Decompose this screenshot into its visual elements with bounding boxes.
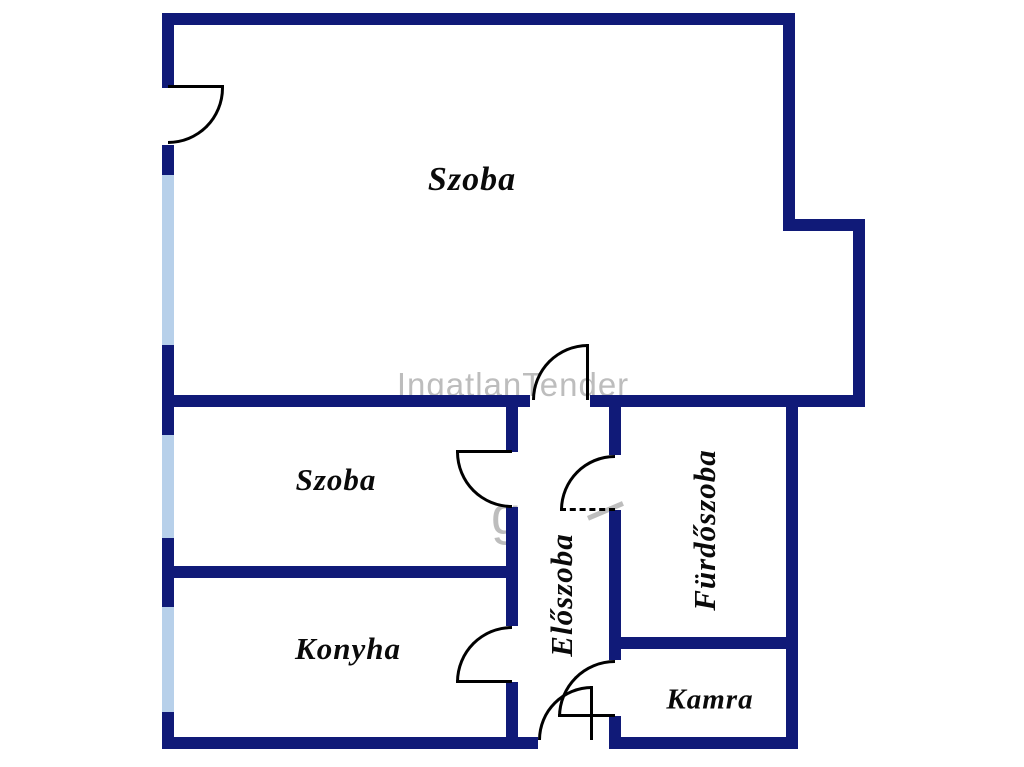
wall-left-segment-3 xyxy=(162,345,174,435)
wall-hall-left-segment-2 xyxy=(506,507,518,626)
wall-alcove-right xyxy=(853,219,865,407)
room-label-konyha: Konyha xyxy=(295,631,401,667)
room-label-kamra: Kamra xyxy=(666,684,753,717)
szoba-main-door-arc xyxy=(532,344,588,400)
window-szoba-main xyxy=(162,175,174,345)
wall-top xyxy=(162,13,795,25)
wall-left-segment-1 xyxy=(162,13,174,88)
wall-szoba-konyha xyxy=(162,566,518,578)
entry-door-arc xyxy=(538,686,592,740)
room-label-eloszoba: Előszoba xyxy=(544,533,580,656)
room-label-szoba-main: Szoba xyxy=(428,161,516,199)
konyha-door-arc xyxy=(456,626,512,682)
room-label-furdoszoba: Fürdőszoba xyxy=(687,449,723,611)
wall-right-lower xyxy=(786,395,798,749)
window-konyha xyxy=(162,607,174,712)
wall-divider-main-right xyxy=(590,395,865,407)
wall-left-segment-2 xyxy=(162,145,174,175)
wall-hall-left-segment-1 xyxy=(506,395,518,452)
wall-hall-right-segment-1 xyxy=(609,395,621,455)
wall-bottom-left xyxy=(162,737,538,749)
wall-right-upper xyxy=(783,13,795,231)
wall-divider-main-left xyxy=(162,395,530,407)
balcony-door-arc xyxy=(168,88,224,144)
floor-plan: IngatlanTender g Szoba Szoba Konyha Elős… xyxy=(0,0,1024,767)
wall-bottom-right xyxy=(610,737,798,749)
wall-furdo-kamra xyxy=(609,637,798,649)
wall-hall-left-segment-3 xyxy=(506,682,518,749)
szoba-small-door-arc xyxy=(456,452,512,508)
room-label-szoba-small: Szoba xyxy=(296,462,377,498)
wall-hall-right-segment-3 xyxy=(609,716,621,749)
window-szoba-small xyxy=(162,435,174,538)
furdoszoba-door-arc xyxy=(560,455,615,510)
